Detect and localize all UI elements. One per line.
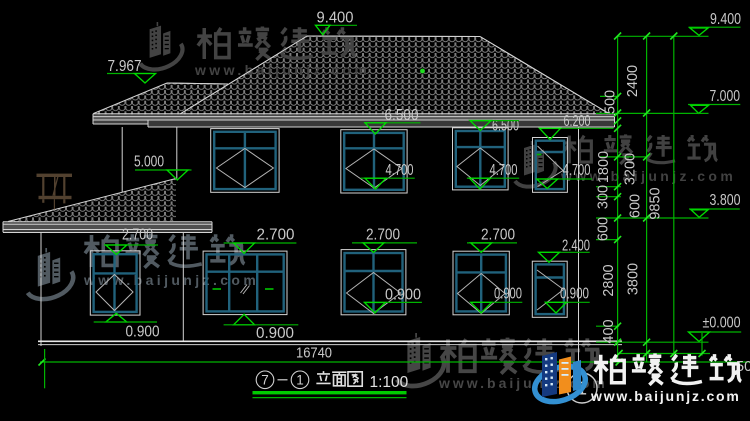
- svg-text:9850: 9850: [648, 187, 664, 219]
- svg-text:9.400: 9.400: [710, 11, 741, 28]
- svg-text:3800: 3800: [626, 263, 642, 295]
- svg-text:2800: 2800: [601, 264, 617, 296]
- svg-text:3.800: 3.800: [710, 192, 741, 209]
- svg-text:1: 1: [296, 373, 304, 388]
- svg-text:0.900: 0.900: [560, 286, 589, 303]
- svg-text:3200: 3200: [623, 153, 639, 185]
- svg-text:±0.000: ±0.000: [703, 315, 741, 332]
- svg-text:600: 600: [627, 194, 643, 218]
- svg-text:2.700: 2.700: [366, 227, 400, 244]
- svg-text:7.000: 7.000: [710, 88, 741, 105]
- svg-text:4.700: 4.700: [563, 162, 591, 179]
- svg-text:4.700: 4.700: [490, 162, 518, 179]
- svg-text:www.baijunjz.com: www.baijunjz.com: [194, 62, 370, 78]
- svg-text:6.200: 6.200: [564, 113, 591, 130]
- svg-text:5.000: 5.000: [134, 154, 164, 171]
- svg-text:400: 400: [601, 319, 617, 343]
- svg-text:2.700: 2.700: [122, 227, 153, 244]
- svg-text:7: 7: [261, 373, 269, 388]
- svg-text:9.400: 9.400: [317, 10, 354, 27]
- svg-text:0.900: 0.900: [385, 287, 421, 304]
- svg-text:2.700: 2.700: [257, 227, 295, 244]
- svg-text:7.967: 7.967: [108, 58, 142, 75]
- svg-text:0.900: 0.900: [256, 325, 294, 342]
- svg-text:500: 500: [603, 90, 619, 114]
- svg-text:300: 300: [596, 185, 612, 209]
- svg-text:www.baijunjz.com: www.baijunjz.com: [590, 388, 741, 404]
- svg-text:6.500: 6.500: [385, 107, 419, 124]
- svg-text:600: 600: [595, 217, 611, 241]
- svg-text:0.900: 0.900: [126, 324, 160, 341]
- svg-text:2.700: 2.700: [481, 227, 515, 244]
- svg-text:1800: 1800: [596, 151, 612, 183]
- svg-text:4.700: 4.700: [386, 162, 414, 179]
- svg-text:1:100: 1:100: [370, 374, 409, 391]
- svg-text:16740: 16740: [296, 346, 332, 362]
- svg-text:0.900: 0.900: [494, 286, 522, 303]
- svg-text:2400: 2400: [625, 65, 641, 97]
